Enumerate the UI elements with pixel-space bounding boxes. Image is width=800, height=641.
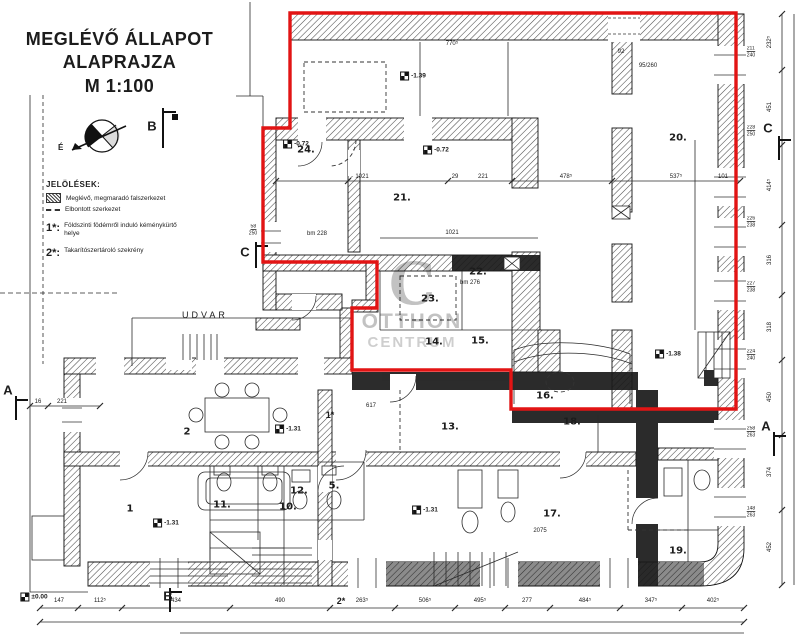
title-line-2: ALAPRAJZA (22, 51, 217, 74)
floor-plan-scan: { "title_block": {"line1": "MEGLÉVŐ ÁLLA… (0, 0, 800, 641)
title-block: MEGLÉVŐ ÁLLAPOT ALAPRAJZA M 1:100 (22, 28, 217, 98)
legend-item-existing: Meglévő, megmaradó falszerkezet (46, 193, 236, 203)
note-key: 2*: (46, 247, 60, 259)
note-key: 1*: (46, 222, 60, 238)
note-text: Földszinti födémről induló kéménykürtő h… (64, 222, 184, 238)
hatch-swatch-icon (46, 193, 61, 203)
legend-note-1: 1*: Földszinti födémről induló kéménykür… (46, 222, 236, 238)
legend-item-label: Elbontott szerkezet (65, 206, 120, 213)
note-text: Takarítószertároló szekrény (64, 247, 184, 259)
legend-item-demolished: Elbontott szerkezet (46, 206, 236, 213)
dashed-swatch-icon (46, 209, 60, 211)
title-line-1: MEGLÉVŐ ÁLLAPOT (22, 28, 217, 51)
legend-item-label: Meglévő, megmaradó falszerkezet (66, 195, 165, 202)
compass-icon (72, 120, 126, 152)
highlight-outline-red (263, 13, 736, 409)
legend-note-2: 2*: Takarítószertároló szekrény (46, 247, 236, 259)
legend: JELÖLÉSEK: Meglévő, megmaradó falszerkez… (46, 180, 236, 259)
legend-heading: JELÖLÉSEK: (46, 180, 236, 189)
title-line-3: M 1:100 (22, 75, 217, 98)
north-label: É (58, 143, 63, 152)
dimension-chains (37, 11, 794, 633)
courtyard-label: UDVAR (182, 310, 228, 320)
